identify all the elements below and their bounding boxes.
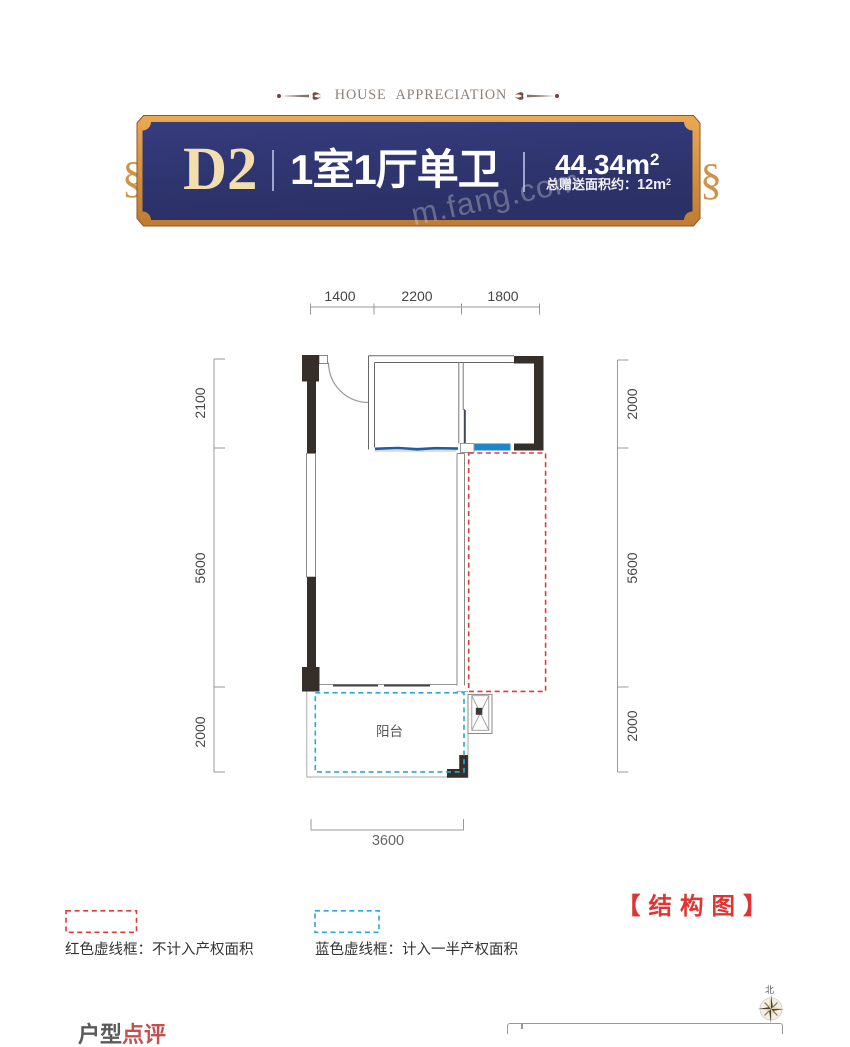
svg-text:2000: 2000 xyxy=(624,388,640,419)
svg-text:2100: 2100 xyxy=(192,387,208,418)
svg-text:阳台: 阳台 xyxy=(376,724,403,739)
svg-text:2000: 2000 xyxy=(192,716,208,747)
svg-text:2000: 2000 xyxy=(624,710,640,741)
svg-text:1800: 1800 xyxy=(487,288,518,304)
svg-text:5600: 5600 xyxy=(192,552,208,583)
svg-text:1400: 1400 xyxy=(324,288,355,304)
svg-text:§: § xyxy=(700,155,722,204)
svg-text:5600: 5600 xyxy=(624,552,640,583)
svg-text:3600: 3600 xyxy=(372,833,404,849)
svg-text:2200: 2200 xyxy=(401,288,432,304)
